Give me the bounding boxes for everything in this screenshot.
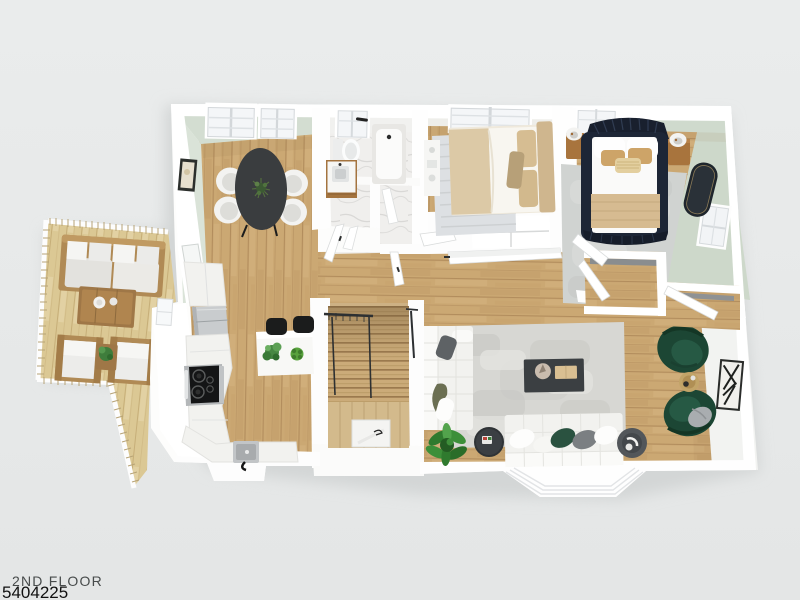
svg-text:5404225: 5404225 <box>2 583 68 600</box>
